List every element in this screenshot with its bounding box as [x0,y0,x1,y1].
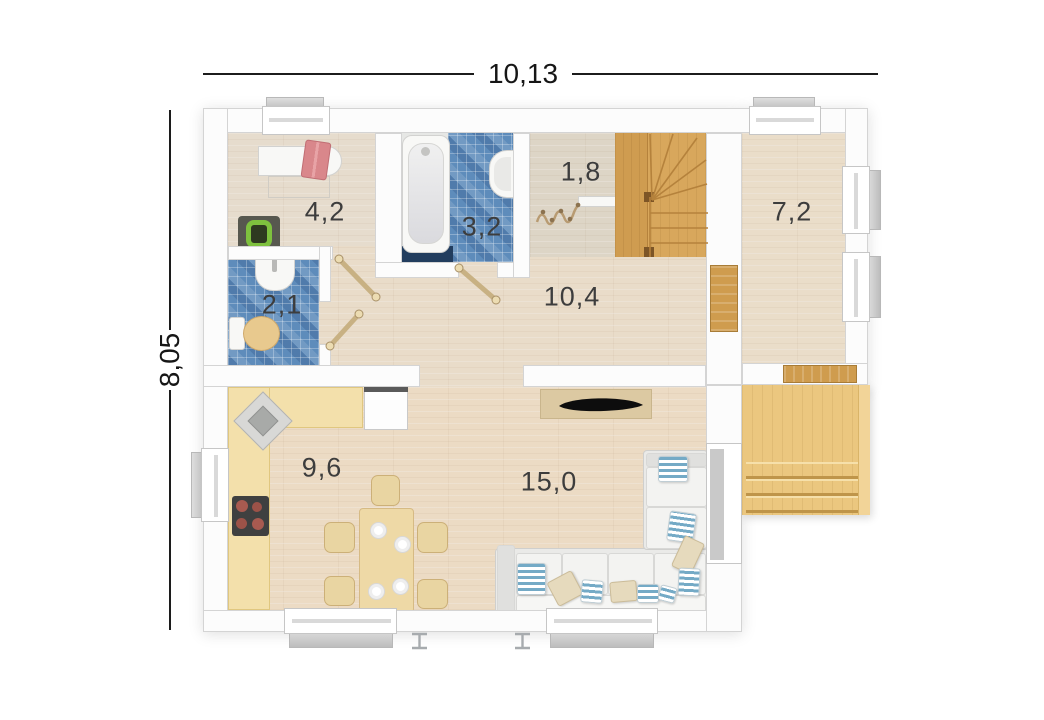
window-bottom-1 [284,608,397,634]
cushion-stripe-right-2 [677,567,700,596]
wall-room-top-left-bottom [228,246,333,260]
window-living-terrace [706,443,742,564]
door-terrace [783,365,857,383]
cushion-stripe-chaise [658,456,688,482]
pink-towels [300,139,331,180]
room-label-bathroom: 3,2 [462,212,503,243]
terrace-step-3 [746,496,858,513]
room-label-right: 7,2 [772,197,813,228]
room-label-kitchen: 9,6 [302,453,343,484]
room-right-floor [742,133,845,363]
room-label-entry: 1,8 [561,157,602,188]
room-label-living: 15,0 [521,467,578,498]
room-label-top-left: 4,2 [305,197,346,228]
wall-living-top [523,365,706,387]
dimension-left-line-bottom [169,390,171,630]
dining-chair-right-1 [417,522,448,553]
section-marks [412,634,530,648]
dining-chair-left-1 [324,522,355,553]
window-top-1 [262,106,330,135]
dining-chair-left-2 [324,576,355,606]
dimension-height-label: 8,05 [154,333,186,388]
wall-exterior-right [845,108,868,385]
cushion-beige-2 [609,580,638,603]
plate-2 [394,536,411,553]
dimension-width-label: 10,13 [488,58,558,90]
window-right-1 [842,166,870,234]
fridge [364,387,408,430]
room-label-hall: 10,4 [544,282,601,313]
dining-chair-top [371,475,400,506]
dimension-top-line-left [203,73,474,75]
wall-bath-bottom-left [375,262,459,278]
wall-kitchen-top [203,365,420,387]
cushion-stripe-left [517,563,546,595]
terrace-stringer [858,385,870,515]
wc-basin-faucet [272,258,277,272]
wall-bath-right [513,133,530,278]
toilet-bowl [243,316,280,351]
room-label-wc: 2,1 [262,290,303,321]
cooktop-burner-3 [236,518,247,529]
wall-bath-left [375,133,402,265]
staircase-newel-bottom [644,247,654,257]
door-room-right [710,265,738,332]
cooktop-burner-4 [252,518,264,530]
entry-bench [578,196,617,207]
entry-floor [530,133,615,257]
window-left [201,448,229,522]
cooktop-burner-1 [236,500,248,512]
dining-chair-right-2 [417,579,448,609]
plate-3 [368,583,385,600]
dining-table [359,508,414,613]
cushion-stripe-3 [637,584,659,603]
terrace-step-1 [746,462,858,479]
plate-1 [370,522,387,539]
window-right-2 [842,252,870,322]
bathtub-basin [408,143,444,244]
armchair-green-cushion [246,220,272,248]
fridge-top-edge [364,387,408,392]
bathtub-faucet [421,147,430,156]
dimension-left-line-top [169,110,171,330]
dimension-top-line-right [572,73,878,75]
staircase-newel-top [644,192,654,202]
wall-wc-right-upper [319,246,331,302]
plate-4 [392,578,409,595]
cooktop-burner-2 [252,502,262,512]
wall-hall-room-right [706,133,742,385]
cushion-stripe-mid [580,579,604,604]
terrace-step-2 [746,479,858,496]
window-bottom-2 [546,608,658,634]
floor-plan-canvas: 4,2 3,2 1,8 7,2 2,1 10,4 9,6 15,0 10,13 … [0,0,1044,720]
wall-basin-bowl [494,157,511,191]
window-top-2 [749,106,821,135]
tv-console [540,389,652,419]
sofa-armrest-left [497,545,515,613]
